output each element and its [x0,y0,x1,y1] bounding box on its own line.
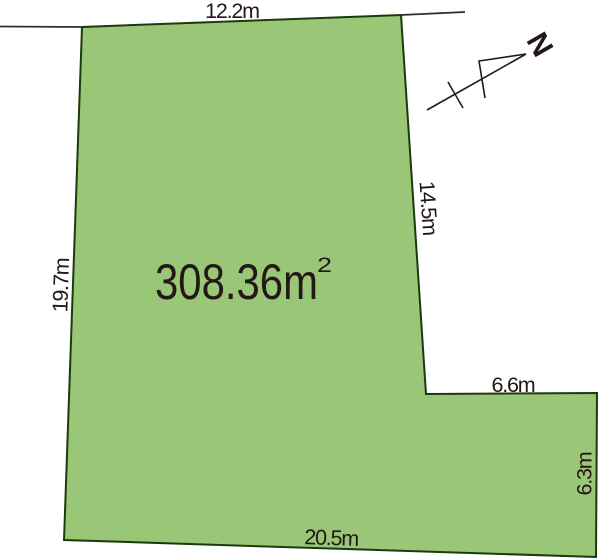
svg-text:20.5m: 20.5m [304,525,359,551]
svg-text:6.3m: 6.3m [573,452,597,495]
svg-text:12.2m: 12.2m [205,0,259,23]
svg-text:6.6m: 6.6m [492,373,535,397]
svg-text:2: 2 [317,254,332,277]
svg-text:N: N [520,27,559,62]
svg-text:14.5m: 14.5m [415,180,443,236]
svg-text:308.36m: 308.36m [155,254,318,310]
svg-text:19.7m: 19.7m [48,258,74,313]
